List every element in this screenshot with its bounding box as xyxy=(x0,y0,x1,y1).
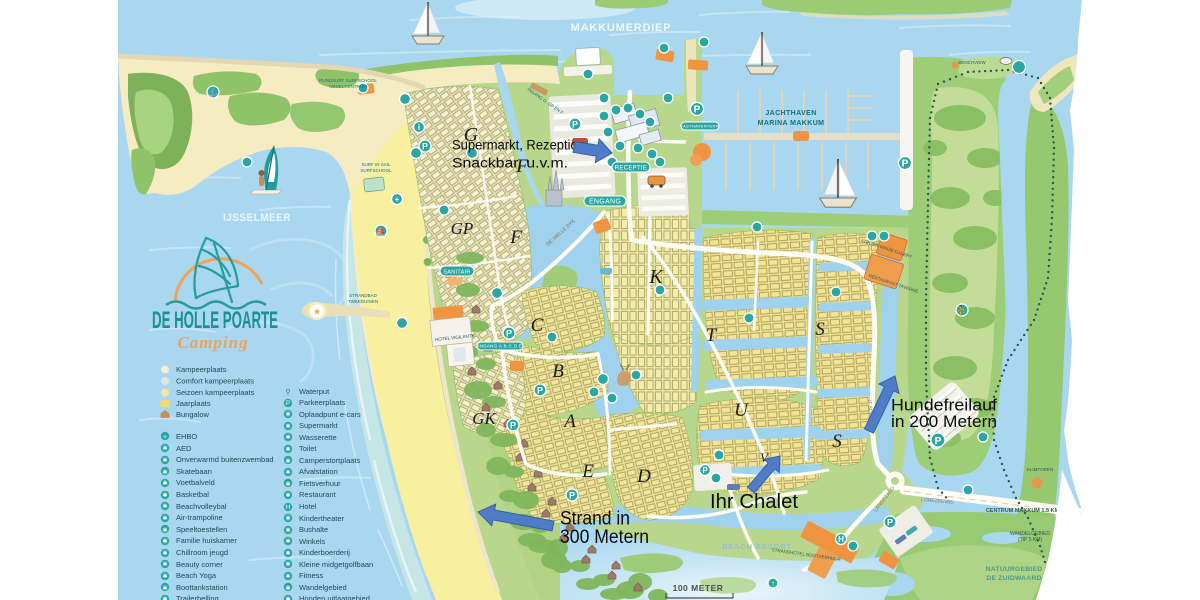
svg-text:S: S xyxy=(815,319,825,340)
svg-text:Oplaadpunt e-cars: Oplaadpunt e-cars xyxy=(299,410,361,419)
svg-text:✱: ✱ xyxy=(285,469,290,476)
svg-text:⛹: ⛹ xyxy=(956,304,967,315)
svg-text:✱: ✱ xyxy=(162,538,167,545)
svg-text:Supermarkt: Supermarkt xyxy=(299,421,339,430)
svg-text:Boottankstation: Boottankstation xyxy=(176,583,228,592)
svg-text:A: A xyxy=(562,411,576,432)
svg-text:100 METER: 100 METER xyxy=(673,583,724,593)
svg-text:KLIMTOREN: KLIMTOREN xyxy=(1027,467,1053,472)
svg-text:✱: ✱ xyxy=(285,492,290,499)
svg-text:Chillroom jeugd: Chillroom jeugd xyxy=(176,548,228,557)
svg-text:✱: ✱ xyxy=(162,492,167,499)
svg-text:S: S xyxy=(832,431,842,452)
svg-text:Skatebaan: Skatebaan xyxy=(176,467,212,476)
svg-text:Familie huiskamer: Familie huiskamer xyxy=(176,536,237,545)
svg-text:SURFSCHOOL: SURFSCHOOL xyxy=(360,168,392,173)
svg-text:Air-trampoline: Air-trampoline xyxy=(176,513,223,522)
svg-text:CENTRUM MAKKUM 1.5 KM →: CENTRUM MAKKUM 1.5 KM → xyxy=(986,508,1066,514)
svg-text:in 200 Metern: in 200 Metern xyxy=(891,412,997,431)
svg-text:GASTHAVENTERR.: GASTHAVENTERR. xyxy=(680,123,721,128)
svg-text:✱: ✱ xyxy=(285,434,290,441)
svg-text:P: P xyxy=(572,119,578,129)
svg-text:BENCHVIEW: BENCHVIEW xyxy=(958,60,986,65)
svg-text:+: + xyxy=(395,195,400,204)
svg-text:✱: ✱ xyxy=(162,573,167,580)
svg-text:Speeltoestellen: Speeltoestellen xyxy=(176,525,227,534)
svg-text:SURF IN SAIL: SURF IN SAIL xyxy=(361,162,391,167)
svg-text:✱: ✱ xyxy=(162,527,167,534)
svg-text:★: ★ xyxy=(313,307,321,317)
svg-text:P: P xyxy=(902,159,909,170)
svg-text:✱: ✱ xyxy=(285,550,290,557)
svg-text:Fitness: Fitness xyxy=(299,571,323,580)
svg-text:P: P xyxy=(510,420,516,430)
svg-text:Kleine midgetgolfbaan: Kleine midgetgolfbaan xyxy=(299,560,373,569)
svg-text:MARINA MAKKUM: MARINA MAKKUM xyxy=(758,120,825,127)
svg-text:✱: ✱ xyxy=(162,457,167,464)
svg-text:✱: ✱ xyxy=(285,561,290,568)
svg-text:Kindertheater: Kindertheater xyxy=(299,514,345,523)
svg-text:P: P xyxy=(887,517,893,527)
svg-text:Waterput: Waterput xyxy=(299,387,330,396)
svg-text:✱: ✱ xyxy=(285,585,290,592)
svg-text:Wandelgebied: Wandelgebied xyxy=(299,583,347,592)
svg-text:✱: ✱ xyxy=(285,527,290,534)
svg-text:Voetbalveld: Voetbalveld xyxy=(176,478,215,487)
svg-text:✱: ✱ xyxy=(162,596,167,600)
svg-text:H: H xyxy=(838,535,844,544)
svg-text:IJSSELCENTRUM: IJSSELCENTRUM xyxy=(329,84,367,89)
svg-text:RUNDSURF SURFSCHOOL: RUNDSURF SURFSCHOOL xyxy=(319,78,377,83)
svg-text:JACHTHAVEN: JACHTHAVEN xyxy=(765,110,816,117)
svg-text:P: P xyxy=(286,401,290,407)
svg-text:Seizoen kampeerplaats: Seizoen kampeerplaats xyxy=(176,388,255,397)
svg-text:INGANG A.B.C.D.E: INGANG A.B.C.D.E xyxy=(478,343,522,348)
svg-text:Kampeerplaats: Kampeerplaats xyxy=(176,365,227,374)
svg-text:✱: ✱ xyxy=(285,411,290,418)
svg-text:Bungalow: Bungalow xyxy=(176,410,210,419)
svg-text:+: + xyxy=(163,435,167,441)
svg-text:✱: ✱ xyxy=(285,423,290,430)
svg-text:AED: AED xyxy=(176,444,192,453)
svg-text:✱: ✱ xyxy=(285,515,290,522)
svg-text:P: P xyxy=(537,385,543,395)
svg-text:Wasserette: Wasserette xyxy=(299,433,337,442)
svg-text:C: C xyxy=(531,315,544,336)
svg-text:P: P xyxy=(422,141,428,151)
svg-text:✱: ✱ xyxy=(162,503,167,510)
svg-text:Parkeerplaats: Parkeerplaats xyxy=(299,398,346,407)
svg-text:ENGANG: ENGANG xyxy=(589,198,621,205)
svg-text:DE ZUIDWAARD: DE ZUIDWAARD xyxy=(986,575,1041,582)
svg-text:⛵: ⛵ xyxy=(375,225,386,236)
svg-text:U: U xyxy=(734,400,749,421)
svg-text:⚓: ⚓ xyxy=(207,86,218,97)
svg-text:IJSSELMEER: IJSSELMEER xyxy=(223,212,291,224)
svg-text:✱: ✱ xyxy=(162,561,167,568)
svg-text:Camping: Camping xyxy=(177,333,248,352)
svg-text:Snackbar, u.v.m.: Snackbar, u.v.m. xyxy=(452,156,568,171)
svg-text:i: i xyxy=(418,123,420,132)
svg-text:Bushalte: Bushalte xyxy=(299,525,328,534)
svg-text:GK: GK xyxy=(472,409,497,428)
svg-text:GP: GP xyxy=(451,219,474,238)
svg-text:↑: ↑ xyxy=(771,579,775,588)
svg-text:K: K xyxy=(648,266,664,288)
svg-text:SANITAIR: SANITAIR xyxy=(443,269,470,275)
svg-text:Beachvolleybal: Beachvolleybal xyxy=(176,502,227,511)
svg-text:Ihr Chalet: Ihr Chalet xyxy=(710,491,798,513)
svg-text:T: T xyxy=(706,325,718,346)
svg-text:P: P xyxy=(935,436,942,447)
svg-text:✱: ✱ xyxy=(285,481,290,488)
svg-text:✱: ✱ xyxy=(162,445,167,452)
svg-text:E: E xyxy=(581,461,594,482)
svg-text:✱: ✱ xyxy=(285,446,290,453)
svg-text:RECEPTIE: RECEPTIE xyxy=(615,165,647,171)
svg-text:Honden uitlaatgebied: Honden uitlaatgebied xyxy=(299,594,370,600)
svg-text:Kinderboerderij: Kinderboerderij xyxy=(299,548,350,557)
svg-text:P: P xyxy=(694,105,701,116)
svg-text:P: P xyxy=(506,328,512,338)
svg-text:MAKKUMERDIEP: MAKKUMERDIEP xyxy=(571,22,672,34)
svg-text:Comfort kampeerplaats: Comfort kampeerplaats xyxy=(176,377,254,386)
svg-text:NATUURGEBIED: NATUURGEBIED xyxy=(986,566,1043,573)
svg-text:Beauty corner: Beauty corner xyxy=(176,560,223,569)
svg-text:Restaurant: Restaurant xyxy=(299,490,337,499)
svg-text:Afvalstation: Afvalstation xyxy=(299,467,338,476)
svg-text:✱: ✱ xyxy=(285,458,290,465)
svg-text:✱: ✱ xyxy=(162,585,167,592)
svg-text:Supermarkt, Rezeption: Supermarkt, Rezeption xyxy=(452,138,585,153)
svg-text:Basketbal: Basketbal xyxy=(176,490,209,499)
svg-text:TWEEDUINEN: TWEEDUINEN xyxy=(348,299,378,304)
svg-text:300 Metern: 300 Metern xyxy=(560,527,649,548)
svg-text:Jaarplaats: Jaarplaats xyxy=(176,399,211,408)
svg-text:Onverwarmd buitenzwembad: Onverwarmd buitenzwembad xyxy=(176,455,274,464)
svg-text:Trailerhelling: Trailerhelling xyxy=(176,594,219,600)
svg-text:P: P xyxy=(569,490,575,500)
svg-text:✱: ✱ xyxy=(285,538,290,545)
svg-text:Hotel: Hotel xyxy=(299,502,317,511)
svg-text:Camperstortplaats: Camperstortplaats xyxy=(299,456,361,465)
svg-text:Winkels: Winkels xyxy=(299,537,326,546)
svg-text:DE HOLLE POARTE: DE HOLLE POARTE xyxy=(152,307,278,334)
svg-text:Fietsverhuur: Fietsverhuur xyxy=(299,479,341,488)
svg-text:Beach Yoga: Beach Yoga xyxy=(176,571,217,580)
svg-text:Toilet: Toilet xyxy=(299,444,317,453)
svg-text:✱: ✱ xyxy=(162,469,167,476)
svg-text:✱: ✱ xyxy=(285,573,290,580)
svg-text:F: F xyxy=(509,227,522,248)
svg-text:⚲: ⚲ xyxy=(285,388,290,396)
svg-text:H: H xyxy=(286,505,290,511)
svg-text:P: P xyxy=(702,466,708,475)
svg-text:B: B xyxy=(552,361,564,382)
svg-text:✱: ✱ xyxy=(162,550,167,557)
svg-text:EHBO: EHBO xyxy=(176,432,197,441)
svg-text:✱: ✱ xyxy=(162,480,167,487)
svg-text:✱: ✱ xyxy=(162,515,167,522)
svg-text:(TIP 5 KM): (TIP 5 KM) xyxy=(1018,537,1042,543)
svg-text:STRANDBAD: STRANDBAD xyxy=(349,293,378,298)
svg-text:D: D xyxy=(636,466,651,487)
svg-text:✱: ✱ xyxy=(285,596,290,600)
